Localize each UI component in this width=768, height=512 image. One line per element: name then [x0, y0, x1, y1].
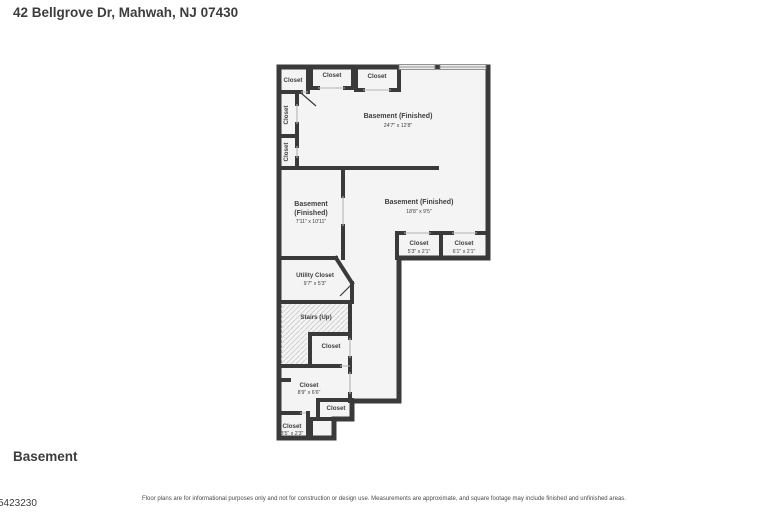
- room-dims-closet-right-2: 6'1" x 2'1": [453, 249, 476, 255]
- floor-name: Basement: [13, 449, 78, 464]
- room-dims-basement-center: 18'8" x 9'5": [406, 209, 432, 215]
- room-label-closet-bottom-left: Closet: [283, 423, 302, 430]
- room-label-closet-mid: Closet: [322, 343, 341, 350]
- room-dims-utility-closet: 9'7" x 5'3": [304, 281, 327, 287]
- room-label-basement-left-2: (Finished): [294, 210, 327, 217]
- room-dims-closet-right-1: 5'3" x 2'1": [408, 249, 431, 255]
- room-label-closet-side-lower: Closet: [283, 143, 290, 162]
- room-label-closet-top-mid: Closet: [323, 72, 342, 79]
- room-label-stairs: Stairs (Up): [300, 314, 331, 321]
- room-label-basement-main: Basement (Finished): [364, 113, 433, 120]
- room-dims-basement-main: 24'7" x 12'8": [384, 123, 413, 129]
- room-dims-basement-left: 7'11" x 10'11": [296, 219, 327, 225]
- room-label-closet-right-2: Closet: [455, 240, 474, 247]
- room-label-basement-left-1: Basement: [294, 201, 328, 208]
- room-label-closet-side-upper: Closet: [283, 106, 290, 125]
- room-label-closet-lower-big: Closet: [300, 382, 319, 389]
- room-label-basement-center: Basement (Finished): [385, 199, 454, 206]
- room-dims-closet-lower-big: 8'9" x 6'6": [298, 390, 321, 396]
- room-label-closet-right-1: Closet: [410, 240, 429, 247]
- room-label-utility-closet: Utility Closet: [296, 272, 334, 279]
- room-label-closet-top-right: Closet: [368, 73, 387, 80]
- room-label-closet-lower-small: Closet: [327, 405, 346, 412]
- floor-plan: Basement (Finished) 24'7" x 12'8" Baseme…: [0, 0, 768, 512]
- room-dims-closet-bottom-left: 3'5" x 2'3": [281, 431, 304, 437]
- footer-disclaimer: Floor plans are for informational purpos…: [0, 496, 768, 502]
- room-label-closet-top-left: Closet: [284, 77, 303, 84]
- listing-number: 5423230: [0, 498, 37, 509]
- floor-plan-page: 42 Bellgrove Dr, Mahwah, NJ 07430 Baseme…: [0, 0, 768, 512]
